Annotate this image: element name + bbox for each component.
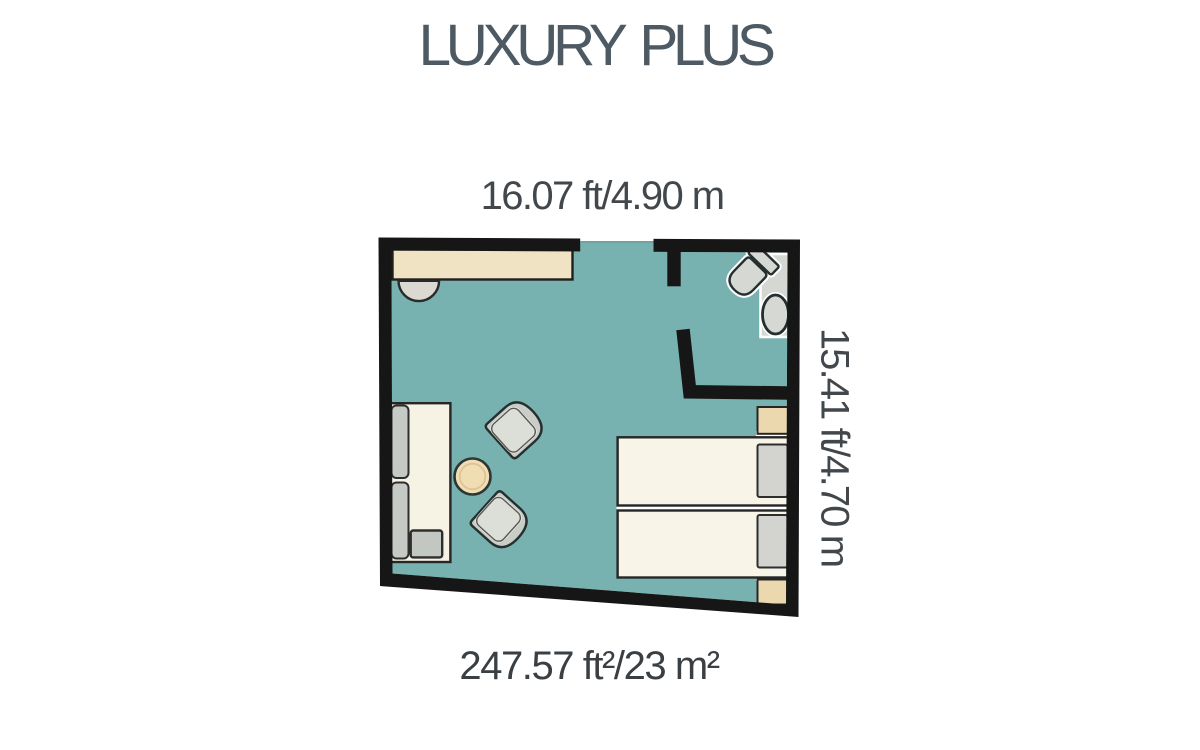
svg-text:247.57 ft²/23 m²: 247.57 ft²/23 m² (459, 644, 719, 688)
svg-text:15.41 ft/4.70 m: 15.41 ft/4.70 m (813, 328, 857, 566)
svg-text:16.07 ft/4.90 m: 16.07 ft/4.90 m (481, 174, 724, 218)
svg-text:LUXURY PLUS: LUXURY PLUS (419, 13, 774, 78)
